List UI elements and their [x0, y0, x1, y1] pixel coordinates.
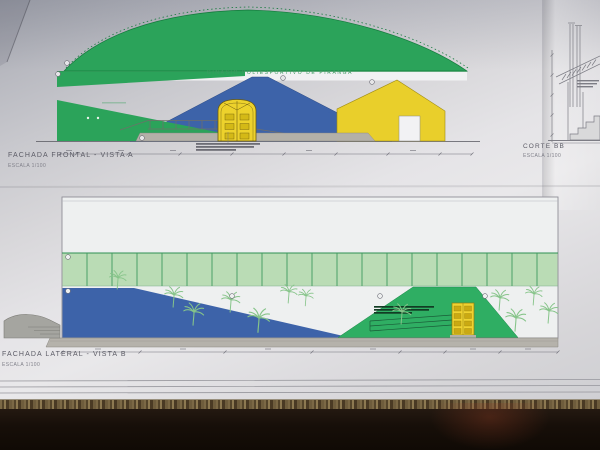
dimension-numbers: [95, 349, 531, 350]
frontal-elevation: [36, 7, 480, 156]
building-title: GINÁSIO POLIESPORTIVO DE PIRANGA: [180, 70, 380, 76]
horizontal-fold-line: [0, 186, 600, 187]
corte-section: [548, 23, 600, 143]
title-block-lines: [0, 380, 600, 394]
door-sill: [450, 335, 476, 338]
section-scale-label: ESCALA 1/100: [523, 153, 561, 159]
bleacher-steps: [570, 116, 600, 140]
table-reflection: [430, 403, 550, 450]
lateral-scale-label: ESCALA 1/100: [2, 362, 40, 368]
exterior-steps-mound: [4, 314, 60, 338]
lateral-view-label: FACHADA LATERAL - VISTA B: [2, 351, 127, 358]
frontal-view-label: FACHADA FRONTAL - VISTA A: [8, 152, 134, 159]
section-note-lines: [577, 80, 599, 87]
wall-detail-dot: [97, 117, 99, 119]
sidewalk-base: [46, 338, 558, 347]
drawing-artwork: [0, 0, 600, 400]
corner-crease-shadow: [0, 0, 30, 66]
dimension-numbers: [66, 150, 416, 151]
side-door-opening: [399, 116, 420, 141]
dome-roof: [64, 10, 467, 71]
frontal-scale-label: ESCALA 1/100: [8, 163, 46, 169]
dimension-line: [61, 351, 560, 354]
photo-architectural-drawing: GINÁSIO POLIESPORTIVO DE PIRANGA FACHADA…: [0, 0, 600, 450]
tiny-note-mark: [102, 102, 126, 104]
right-wing-yellow: [337, 80, 445, 141]
lateral-elevation: [4, 197, 560, 354]
section-view-label: CORTE BB: [523, 143, 565, 150]
wall-detail-dot: [87, 117, 89, 119]
